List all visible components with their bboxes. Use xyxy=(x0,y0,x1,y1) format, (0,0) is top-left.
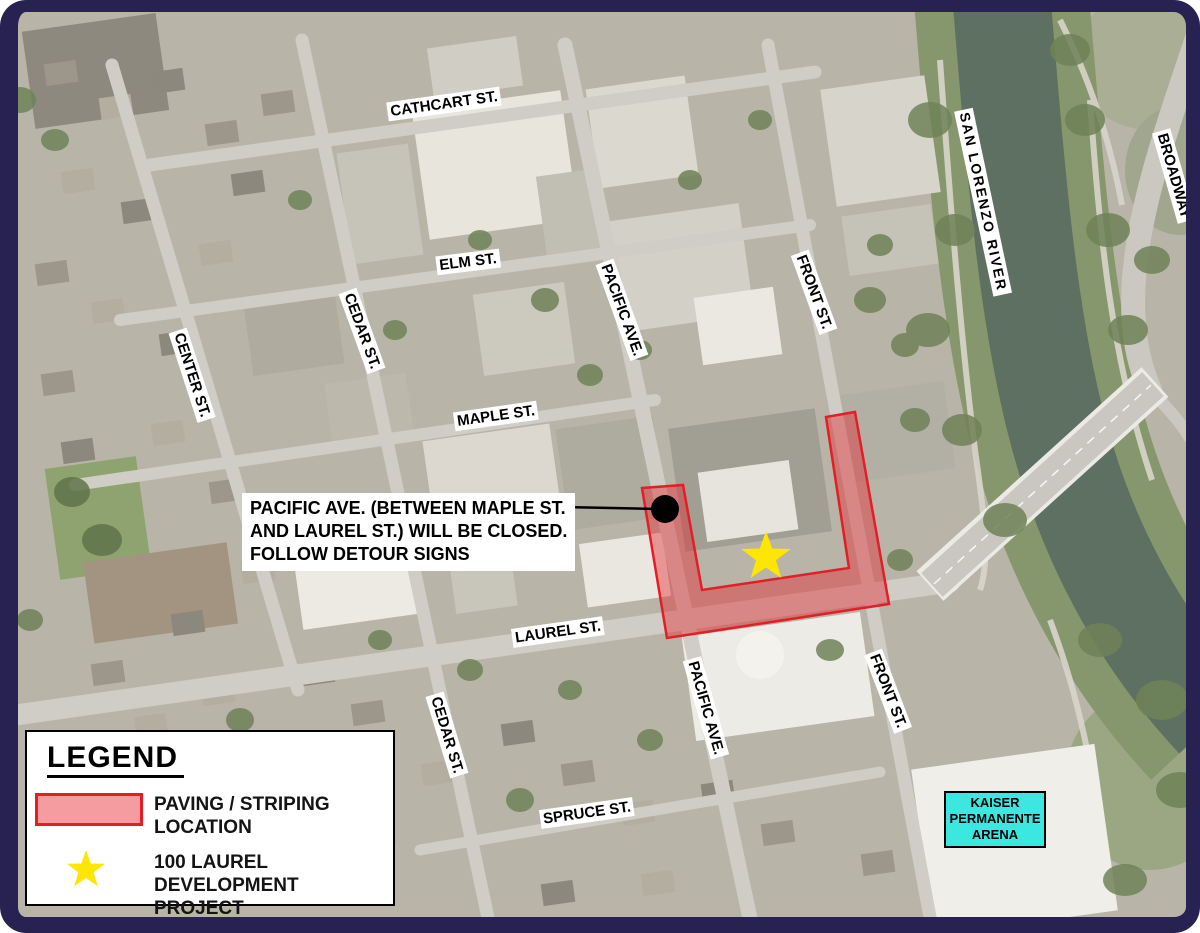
legend-title: LEGEND xyxy=(47,742,184,778)
kaiser-permanente-arena-label: KAISER PERMANENTE ARENA xyxy=(944,791,1046,848)
legend-star-line-2: DEVELOPMENT PROJECT xyxy=(154,874,393,920)
callout-line-2: AND LAUREL ST.) WILL BE CLOSED. xyxy=(250,520,567,543)
legend-row-star: 100 LAUREL DEVELOPMENT PROJECT xyxy=(27,851,393,920)
legend-star-line-1: 100 LAUREL xyxy=(154,851,393,874)
callout-line-3: FOLLOW DETOUR SIGNS xyxy=(250,543,567,566)
legend-paving-line-1: PAVING / STRIPING xyxy=(154,793,330,816)
paving-swatch-icon xyxy=(35,793,143,826)
kaiser-line-1: KAISER xyxy=(946,795,1044,811)
paving-swatch-rect xyxy=(37,795,142,825)
closure-callout: PACIFIC AVE. (BETWEEN MAPLE ST. AND LAUR… xyxy=(242,493,575,571)
legend-label-star: 100 LAUREL DEVELOPMENT PROJECT xyxy=(154,851,393,920)
callout-line-1: PACIFIC AVE. (BETWEEN MAPLE ST. xyxy=(250,497,567,520)
legend-row-paving: PAVING / STRIPING LOCATION xyxy=(27,793,393,839)
legend-label-paving: PAVING / STRIPING LOCATION xyxy=(154,793,330,839)
legend-star-shape xyxy=(67,850,105,886)
kaiser-line-2: PERMANENTE xyxy=(946,811,1044,827)
legend-paving-line-2: LOCATION xyxy=(154,816,330,839)
star-icon xyxy=(64,847,108,891)
legend: LEGEND PAVING / STRIPING LOCATION 100 LA… xyxy=(25,730,395,906)
paving-map-document: CATHCART ST. ELM ST. MAPLE ST. LAUREL ST… xyxy=(0,0,1200,933)
callout-dot xyxy=(651,495,679,523)
kaiser-line-3: ARENA xyxy=(946,827,1044,843)
